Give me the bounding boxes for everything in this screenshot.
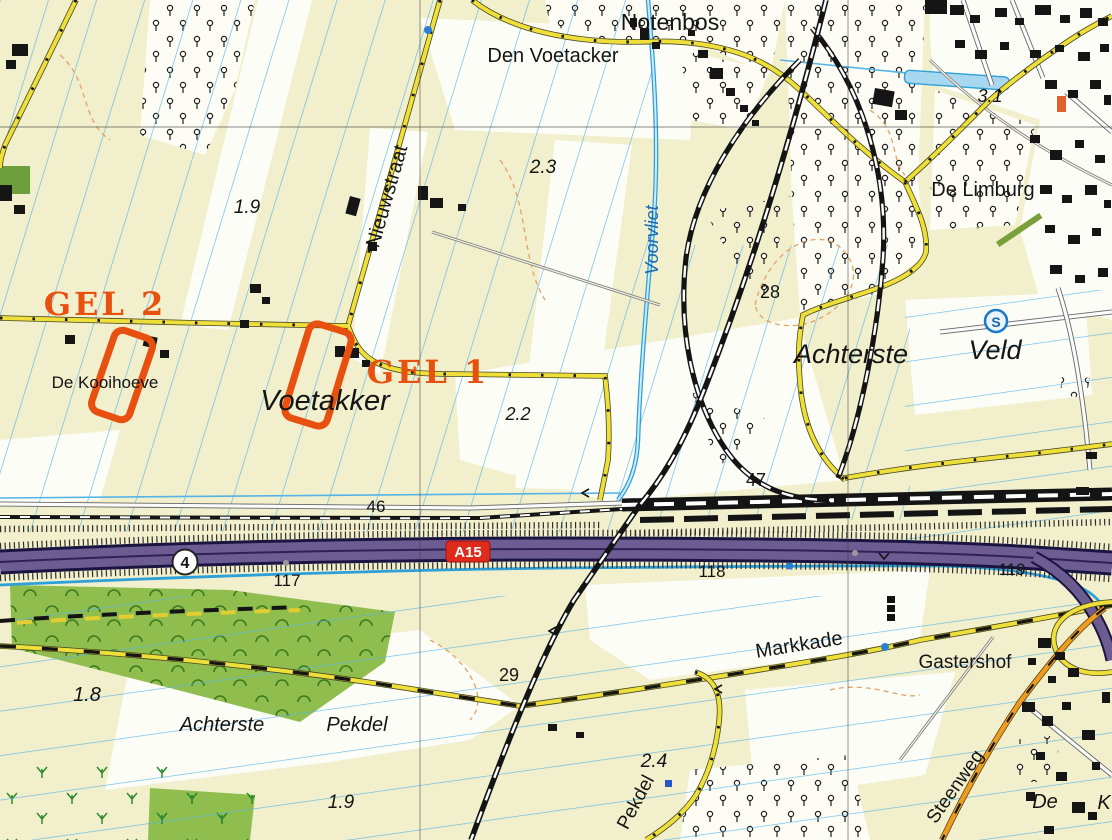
label-gastershof: Gastershof [919,652,1013,673]
number-29: 29 [499,665,519,685]
number-2-3: 2.3 [529,157,557,178]
number-118: 118 [698,562,725,581]
blue-dot [787,563,794,570]
number-2-4: 2.4 [640,751,667,772]
exit-number-label: 4 [181,555,190,572]
annotation-gel-1: GEL 1 [367,353,490,391]
topographic-map: A15 4 Notenbos Den Voetacker Nieuwstraat… [0,0,1112,840]
label-achterste-veld-2: Veld [968,335,1022,365]
number-47: 47 [746,470,766,490]
number-119: 119 [998,560,1025,579]
number-46: 46 [367,497,386,516]
label-den-voetacker: Den Voetacker [487,45,619,67]
label-notenbos: Notenbos [621,9,719,35]
number-3-1: 3.1 [977,86,1002,106]
label-voorvliet: Voorvliet [642,204,662,274]
label-achterste-pekdel-1: Achterste [179,714,264,736]
blue-dot [881,643,889,651]
number-117: 117 [273,571,300,590]
blue-marker [665,780,672,787]
number-1-9-bottom: 1.9 [328,792,355,813]
number-1-8: 1.8 [73,684,101,706]
a15-shield-label: A15 [454,544,482,561]
sluice-symbol-letter: S [991,314,1000,330]
map-canvas: A15 4 Notenbos Den Voetacker Nieuwstraat… [0,0,1112,840]
number-28: 28 [760,282,780,302]
annotation-gel-2: GEL 2 [44,285,167,323]
highlighted-building [1057,96,1066,112]
label-de-fragment: De [1032,791,1058,813]
label-achterste-pekdel-2: Pekdel [326,714,388,736]
label-de-limburg: De Limburg [931,179,1034,201]
number-1-9-top: 1.9 [234,197,261,218]
number-2-2: 2.2 [504,404,530,424]
label-de-kooihoeve: De Kooihoeve [52,373,159,392]
blue-dot [424,26,432,34]
label-k-fragment: K [1097,792,1112,814]
signal-ladder-icon [887,596,895,621]
label-achterste-veld-1: Achterste [792,339,908,369]
